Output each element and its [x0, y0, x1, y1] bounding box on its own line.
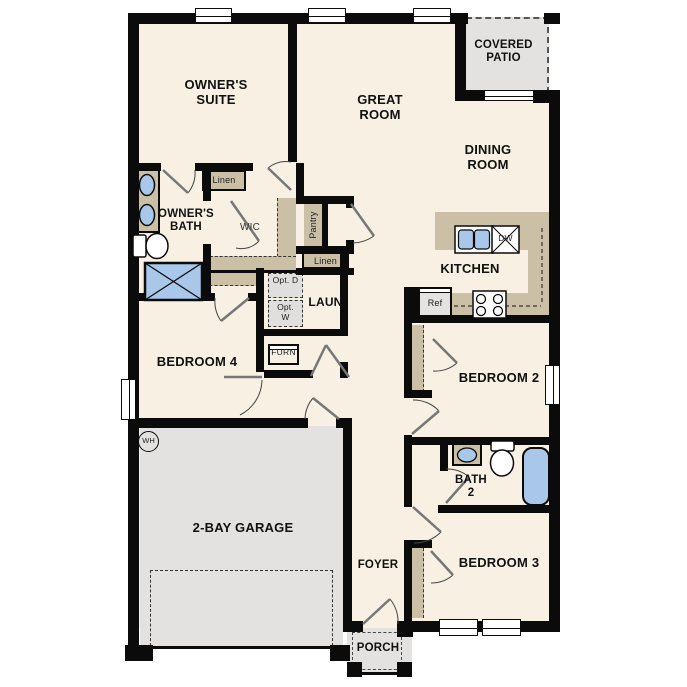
bedroom3-door-arc	[414, 532, 441, 543]
label-pantry: Pantry	[308, 200, 318, 250]
room-label-dining-room: DINING ROOM	[452, 143, 524, 172]
owners-bath-door-arc	[188, 170, 195, 193]
front-door-arc	[390, 599, 398, 624]
room-label-bath2: BATH 2	[452, 474, 490, 500]
shower	[145, 263, 202, 300]
wic-door-arc	[236, 241, 259, 249]
floor-plan: WH OWNER'S SUITE GREAT ROOM COVERED PATI…	[0, 0, 687, 687]
bedroom4-hall-door-leaf	[221, 298, 249, 321]
garage-entry-door-arc	[305, 398, 313, 419]
room-label-foyer: FOYER	[349, 559, 407, 572]
bathtub	[523, 448, 549, 505]
room-label-bedroom2: BEDROOM 2	[440, 371, 558, 386]
room-label-porch: PORCH	[349, 642, 407, 655]
bedroom3-door-leaf	[413, 507, 441, 532]
bedroom2-closet-door-arc	[433, 363, 457, 371]
pantry-door-arc	[353, 236, 374, 243]
label-opt-washer: Opt. W	[272, 303, 299, 322]
bath2-sink	[458, 448, 477, 462]
label-linen-hall: Linen	[302, 256, 349, 266]
room-label-great-room: GREAT ROOM	[340, 93, 420, 122]
room-label-kitchen: KITCHEN	[420, 262, 520, 277]
label-opt-dryer: Opt. D	[272, 276, 299, 286]
room-label-garage: 2-BAY GARAGE	[188, 521, 298, 536]
vanity-sink	[140, 175, 155, 196]
room-label-covered-patio: COVERED PATIO	[466, 39, 541, 65]
wic-door-leaf	[231, 201, 259, 241]
owners-suite-door-arc	[268, 162, 291, 168]
label-refrigerator: Ref	[418, 298, 452, 308]
bath2-toilet-bowl	[491, 450, 514, 476]
furnace-closet-door-leaves	[311, 345, 349, 377]
bedroom2-door-arc	[413, 400, 439, 411]
room-label-bedroom4: BEDROOM 4	[138, 355, 256, 370]
room-label-wic: WIC	[228, 222, 272, 233]
kitchen-sink	[455, 226, 493, 253]
water-heater-label: WH	[142, 436, 155, 445]
room-label-laundry: LAUN	[303, 296, 348, 309]
bedroom4-door-arc	[240, 380, 262, 415]
owners-suite-door-leaf	[268, 168, 291, 190]
label-furnace: FURN	[268, 348, 299, 358]
pantry-door-leaf	[351, 204, 374, 236]
stove	[473, 291, 506, 318]
toilet-tank	[133, 235, 146, 257]
room-label-owners-suite: OWNER'S SUITE	[172, 78, 260, 107]
bedroom2-door-leaf	[412, 411, 439, 434]
label-linen-wic: Linen	[202, 175, 246, 185]
room-label-bedroom3: BEDROOM 3	[440, 556, 558, 571]
bedroom2-closet-door-leaf	[433, 339, 457, 363]
water-heater-symbol: WH	[138, 431, 159, 452]
label-dishwasher: DW	[492, 234, 519, 244]
bedroom3-closet-door-arc	[431, 575, 453, 583]
bedroom4-hall-door-arc	[215, 298, 221, 321]
room-label-owners-bath: OWNER'S BATH	[152, 208, 220, 234]
front-door-leaf	[363, 599, 390, 624]
owners-bath-door-leaf	[163, 170, 188, 193]
toilet-bowl	[146, 234, 168, 259]
garage-entry-door-leaf	[313, 398, 339, 419]
